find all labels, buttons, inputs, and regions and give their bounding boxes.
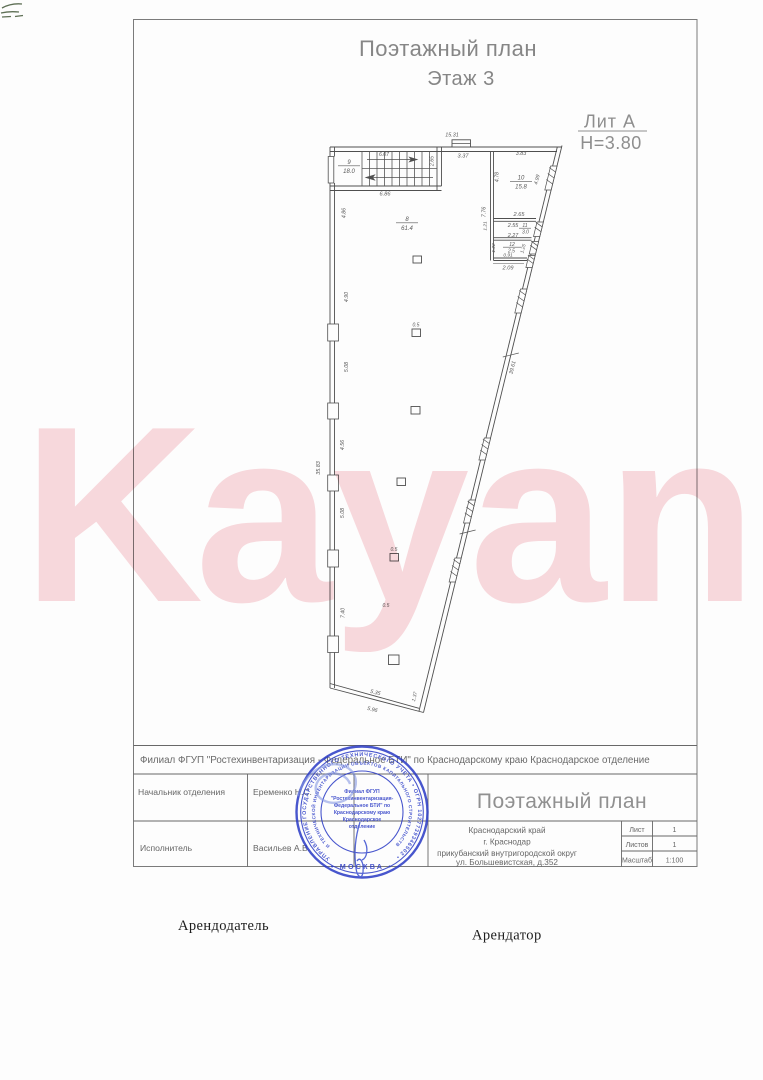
svg-text:5.96: 5.96: [366, 706, 378, 714]
svg-text:отделение: отделение: [349, 824, 376, 830]
svg-text:Филиал ФГУП: Филиал ФГУП: [344, 789, 380, 795]
svg-text:6.07: 6.07: [379, 152, 390, 158]
svg-text:18.0: 18.0: [343, 169, 355, 175]
svg-text:4.99: 4.99: [533, 174, 541, 185]
svg-text:1.25: 1.25: [519, 243, 527, 254]
svg-text:2.65: 2.65: [513, 212, 526, 218]
svg-text:0.5: 0.5: [413, 323, 420, 329]
svg-text:K: K: [22, 375, 203, 655]
svg-text:0.91: 0.91: [503, 253, 513, 259]
svg-text:Арендодатель: Арендодатель: [178, 918, 269, 934]
svg-text:1:100: 1:100: [666, 858, 684, 865]
svg-text:1.22: 1.22: [491, 243, 497, 253]
svg-text:2.55: 2.55: [507, 223, 519, 229]
svg-text:1: 1: [673, 842, 677, 849]
svg-text:1.21: 1.21: [483, 221, 489, 231]
svg-text:3.0: 3.0: [522, 230, 529, 236]
svg-text:10: 10: [518, 176, 525, 182]
svg-text:1.37: 1.37: [411, 691, 419, 702]
svg-text:г. Краснодар: г. Краснодар: [483, 838, 531, 847]
svg-text:4.90: 4.90: [344, 292, 350, 302]
svg-text:61.4: 61.4: [401, 226, 413, 232]
svg-text:Исполнитель: Исполнитель: [140, 843, 193, 853]
svg-text:1: 1: [673, 827, 677, 834]
svg-text:Масштаб: Масштаб: [622, 857, 652, 865]
svg-text:39.61: 39.61: [508, 360, 517, 375]
svg-text:ул. Большевистская, д.352: ул. Большевистская, д.352: [456, 858, 558, 867]
svg-text:Краснодарскому краю: Краснодарскому краю: [334, 810, 391, 816]
svg-text:Краснодарское: Краснодарское: [343, 817, 382, 823]
svg-text:5.08: 5.08: [344, 362, 350, 372]
svg-text:8: 8: [405, 217, 409, 223]
svg-text:6.86: 6.86: [380, 192, 392, 198]
svg-text:Поэтажный план: Поэтажный план: [359, 36, 537, 61]
svg-text:15.8: 15.8: [515, 185, 527, 191]
svg-text:Васильев А.В.: Васильев А.В.: [253, 843, 310, 853]
svg-text:Арендатор: Арендатор: [472, 928, 542, 944]
svg-text:3.83: 3.83: [516, 151, 527, 157]
svg-text:2.65: 2.65: [430, 156, 436, 167]
svg-text:7.76: 7.76: [482, 207, 488, 218]
svg-text:Краснодарский край: Краснодарский край: [468, 826, 545, 835]
svg-text:Лит А: Лит А: [584, 112, 636, 132]
svg-text:15.31: 15.31: [445, 133, 459, 139]
svg-text:H=3.80: H=3.80: [580, 133, 642, 153]
svg-text:3.37: 3.37: [458, 154, 470, 160]
svg-text:Листов: Листов: [626, 842, 649, 849]
svg-text:5.35: 5.35: [369, 689, 382, 698]
svg-text:9: 9: [347, 160, 351, 166]
svg-text:Федеральное БТИ" по: Федеральное БТИ" по: [334, 803, 390, 809]
svg-text:Этаж 3: Этаж 3: [427, 68, 495, 90]
svg-text:4.86: 4.86: [342, 208, 348, 218]
svg-text:Начальник отделения: Начальник отделения: [138, 787, 225, 797]
svg-text:прикубанский внутригородской о: прикубанский внутригородской округ: [437, 849, 577, 858]
svg-text:2.27: 2.27: [507, 233, 519, 239]
svg-text:ayan: ayan: [195, 379, 757, 654]
svg-text:Лист: Лист: [629, 827, 645, 834]
svg-text:2.09: 2.09: [502, 266, 514, 272]
svg-text:Поэтажный план: Поэтажный план: [477, 790, 647, 813]
svg-text:4.78: 4.78: [495, 172, 501, 182]
